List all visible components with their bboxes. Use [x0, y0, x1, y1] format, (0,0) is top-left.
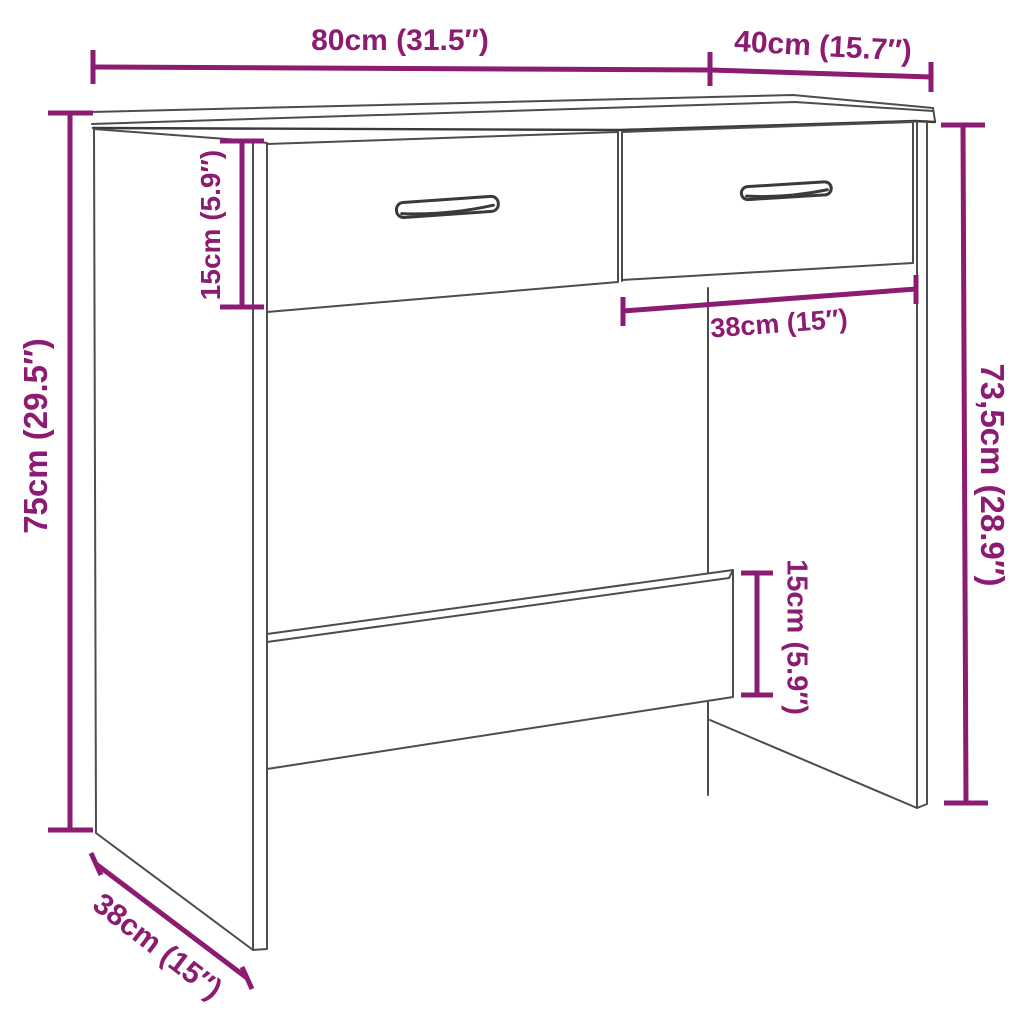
stretcher-panel — [267, 570, 733, 769]
dim-label-stretcher-height: 15cm (5.9″) — [780, 559, 813, 715]
dim-label-left-height: 75cm (29.5″) — [17, 338, 55, 534]
dim-line-stretcher-height — [741, 573, 773, 695]
diagram-canvas: 80cm (31.5″) 40cm (15.7″) 75cm (29.5″) 1… — [0, 0, 1024, 1024]
dim-label-top-width: 80cm (31.5″) — [311, 24, 489, 58]
dim-label-drawer-height: 15cm (5.9″) — [195, 150, 227, 300]
left-drawer — [267, 132, 618, 312]
desk-line-drawing — [0, 0, 1024, 1024]
dim-label-right-height: 73,5cm (28.9″) — [973, 363, 1011, 586]
right-drawer — [622, 122, 913, 280]
